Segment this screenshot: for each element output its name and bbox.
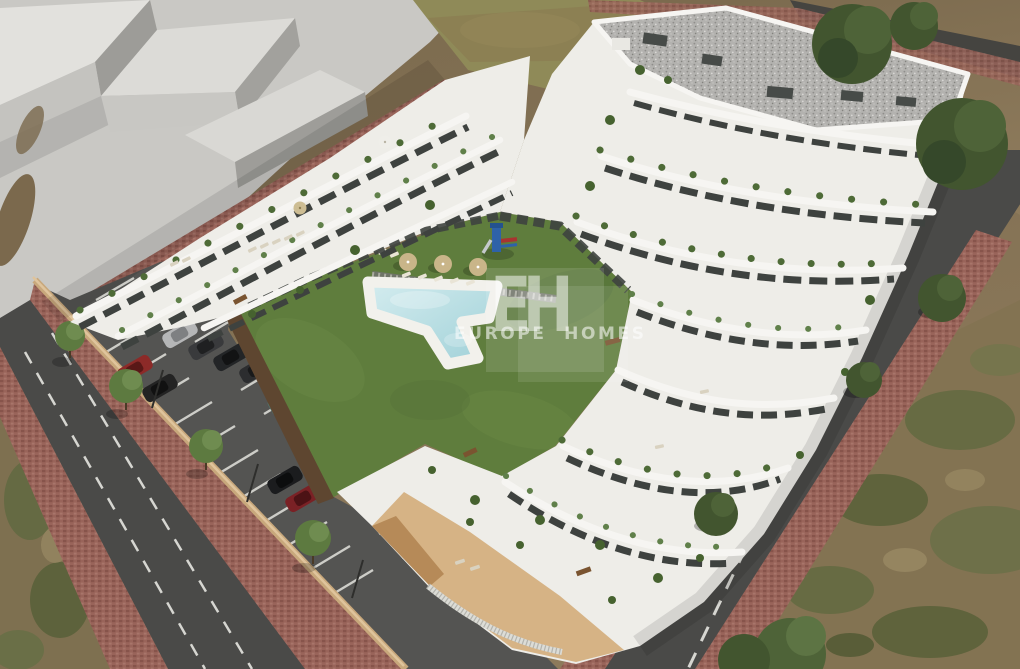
play-tower bbox=[492, 226, 501, 252]
aerial-architectural-render: EH EUROPE HOMES bbox=[0, 0, 1020, 669]
tree bbox=[918, 274, 966, 322]
tree bbox=[694, 492, 738, 536]
scene-illustration bbox=[0, 0, 1020, 669]
tree bbox=[890, 2, 938, 50]
tree bbox=[812, 4, 892, 84]
tree bbox=[916, 98, 1008, 190]
